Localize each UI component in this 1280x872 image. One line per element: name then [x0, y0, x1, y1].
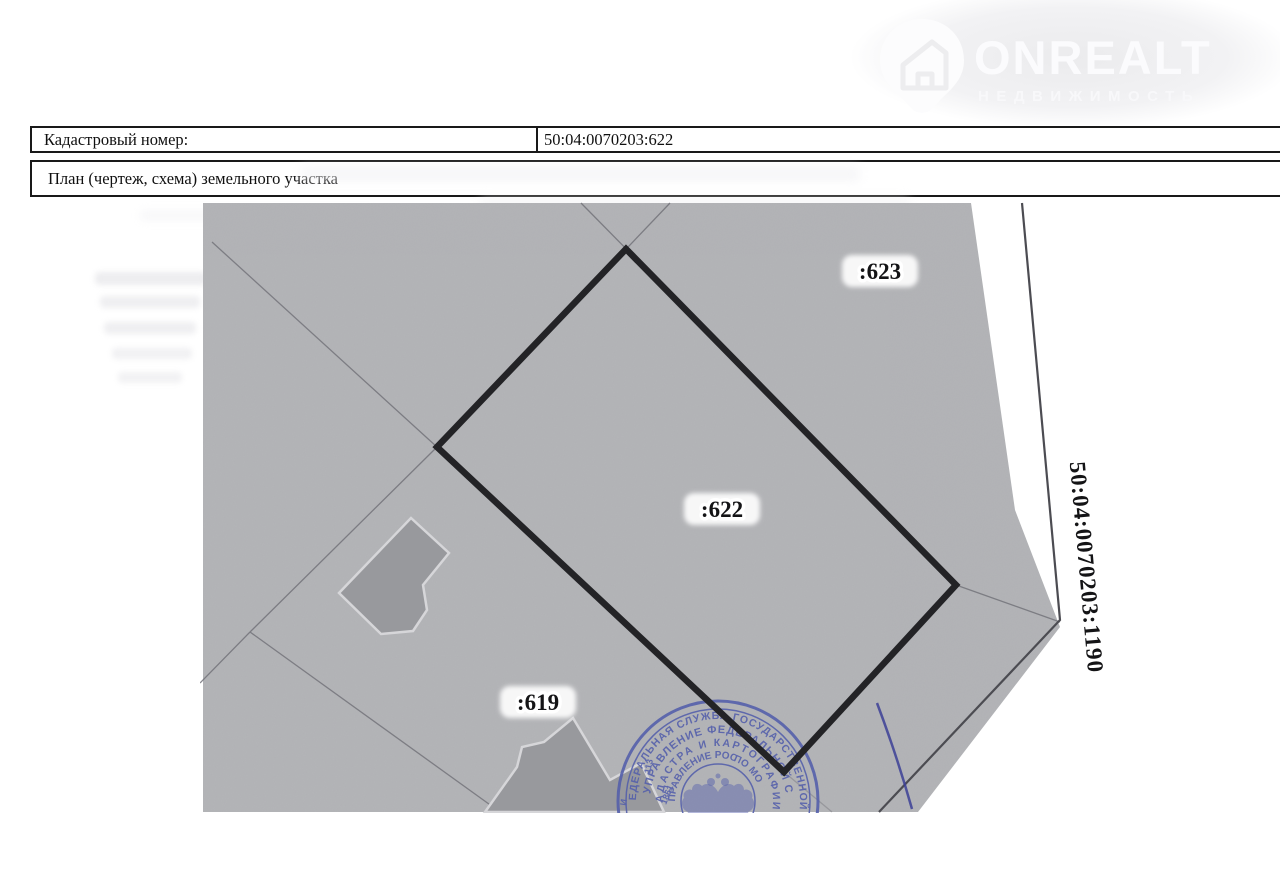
- table-cell-divider: [536, 128, 538, 151]
- scan-artifact: [95, 272, 207, 285]
- onrealt-pin-icon: [872, 16, 972, 116]
- scanned-cadastral-document: ONREALT НЕДВИЖИМОСТЬ Кадастровый номер: …: [0, 0, 1280, 872]
- parcel-label-619: :619: [517, 690, 559, 715]
- brand-name: ONREALT: [974, 30, 1244, 85]
- map-pin-shape: [880, 19, 964, 113]
- cadastral-number-label: Кадастровый номер:: [44, 128, 188, 151]
- parcel-label-623: :623: [859, 259, 901, 284]
- scan-artifact: [118, 372, 182, 383]
- land-plot-map: ФЕДЕРАЛЬНАЯ СЛУЖБА ГОСУДАРСТВЕННОЙ УПРАВ…: [200, 202, 1120, 813]
- plan-title-label: План (чертеж, схема) земельного участка: [48, 162, 338, 195]
- scan-artifact: [112, 348, 192, 359]
- cadastral-number-row: Кадастровый номер: 50:04:0070203:622: [30, 126, 1280, 153]
- brand-subtitle: НЕДВИЖИМОСТЬ: [978, 88, 1200, 105]
- cadastral-number-value: 50:04:0070203:622: [544, 128, 673, 151]
- parcel-label-622: :622: [701, 497, 743, 522]
- scan-artifact: [100, 296, 200, 308]
- boundary-label-1190: 50:04:0070203:1190: [1065, 461, 1108, 675]
- scan-artifact: [104, 322, 196, 334]
- plan-title-row: План (чертеж, схема) земельного участка: [30, 160, 1280, 197]
